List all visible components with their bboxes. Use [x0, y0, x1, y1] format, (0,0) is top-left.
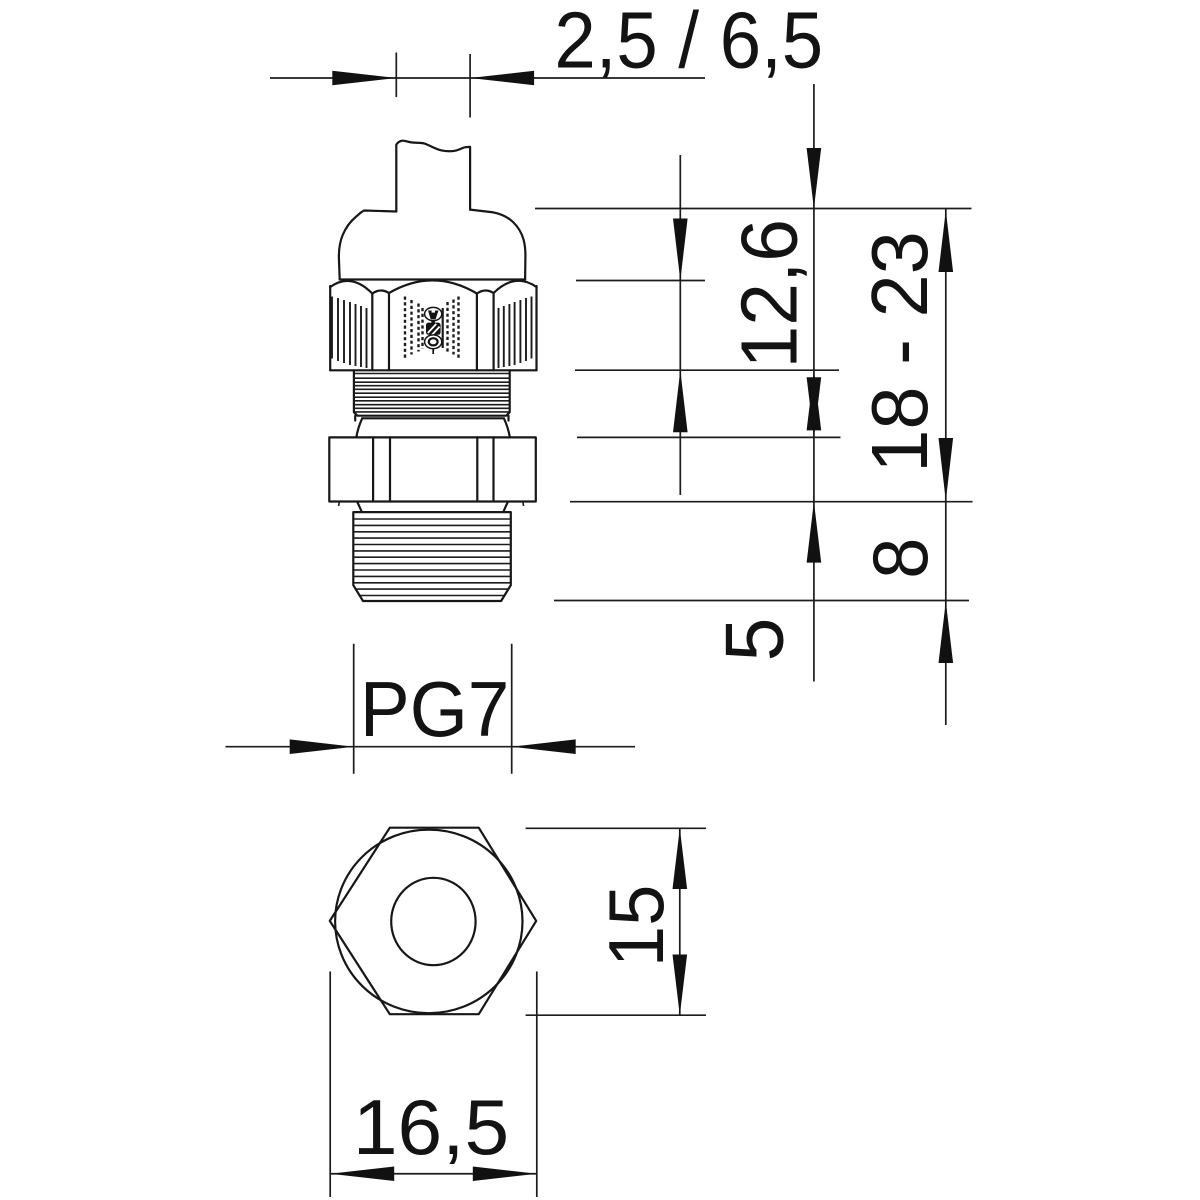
svg-text:2,5 / 6,5: 2,5 / 6,5 [554, 0, 823, 85]
svg-text:5: 5 [709, 618, 801, 662]
svg-text:16,5: 16,5 [353, 1083, 509, 1171]
svg-text:8: 8 [857, 538, 944, 579]
svg-text:12,6: 12,6 [724, 219, 814, 368]
svg-text:18 - 23: 18 - 23 [855, 231, 944, 473]
svg-text:PG7: PG7 [360, 666, 509, 753]
svg-text:15: 15 [593, 885, 680, 967]
